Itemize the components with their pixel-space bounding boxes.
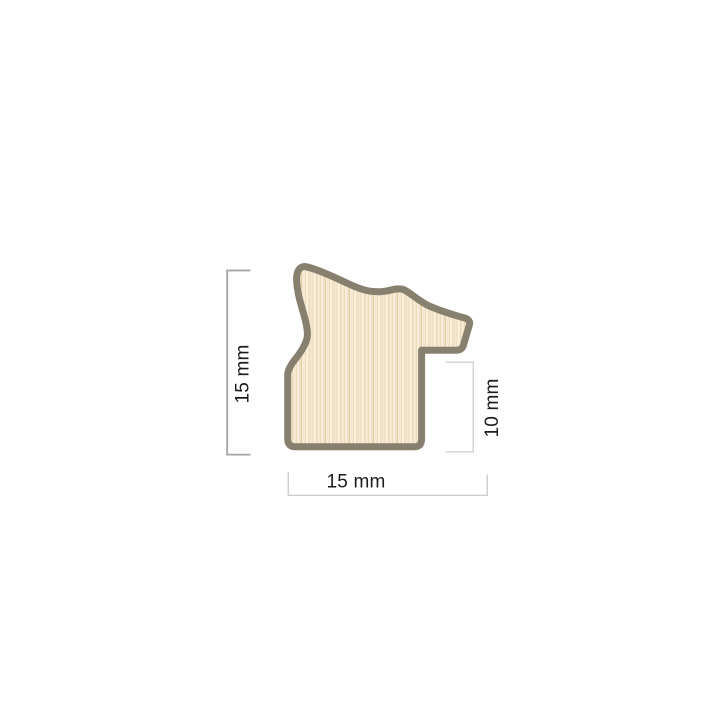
moulding-profile-shape bbox=[288, 267, 470, 447]
dimension-label-width: 15 mm bbox=[326, 472, 385, 493]
dimension-label-height: 15 mm bbox=[233, 344, 254, 403]
diagram-canvas: 15 mm 10 mm 15 mm bbox=[0, 0, 724, 724]
moulding-profile-diagram: 15 mm 10 mm 15 mm bbox=[0, 0, 724, 724]
dimension-line-right bbox=[446, 362, 474, 452]
dimension-line-bottom bbox=[288, 472, 487, 496]
dimension-label-rebate: 10 mm bbox=[482, 378, 503, 437]
